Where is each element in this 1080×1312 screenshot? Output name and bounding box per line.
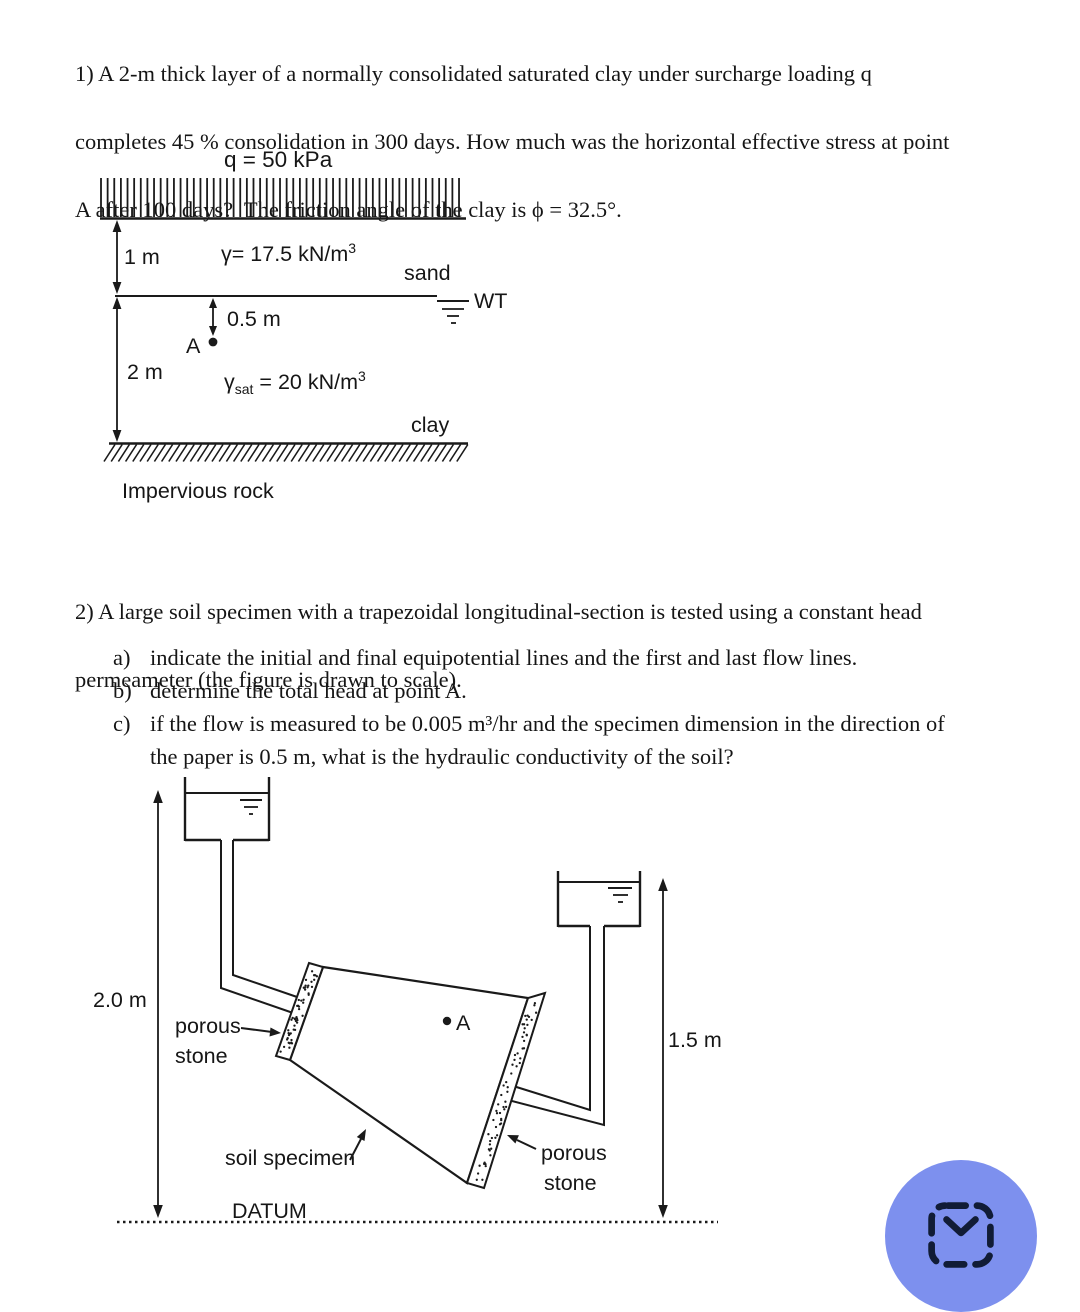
datum-label: DATUM [232,1199,307,1223]
soil-specimen-label: soil specimen [225,1146,355,1170]
dim-1m-label: 1 m [124,245,160,269]
dim-2m-arrow [113,297,122,442]
dim-2m-label: 2 m [127,360,163,384]
right-reservoir [558,871,640,927]
problem1-line1: 1) A 2-m thick layer of a normally conso… [75,58,949,90]
dim-05m-arrow [209,298,217,336]
list-item-b: b)determine the total head at point A. [113,674,945,707]
problem2-subquestions: a)indicate the initial and final equipot… [113,641,945,773]
list-item-c: c)if the flow is measured to be 0.005 m³… [113,707,945,740]
point-a-label: A [456,1011,471,1035]
point-a-dot [443,1017,451,1025]
point-a-dot [209,338,218,347]
figure2-permeameter: 2.0 m 1.5 m [90,770,740,1235]
porous-left-label-line1: porous [175,1014,241,1038]
point-a-label: A [186,334,201,358]
gamma-clay-label: γsat = 20 kN/m3 [224,368,366,397]
porous-right-label-line1: porous [541,1141,607,1165]
dim-left-arrow [153,790,163,1218]
problem2-line1: 2) A large soil specimen with a trapezoi… [75,596,922,628]
dim-05m-label: 0.5 m [227,307,281,331]
dim-right-arrow [658,878,668,1218]
porous-right-label-line2: stone [544,1171,597,1195]
clay-label: clay [411,413,449,437]
capture-region-button[interactable] [885,1160,1037,1312]
list-item-a: a)indicate the initial and final equipot… [113,641,945,674]
dim-1m-arrow [113,220,122,294]
water-level-icon [240,800,262,814]
document-page: { "problem1": { "text_lines": [ "1) A 2-… [0,0,1080,1235]
impervious-rock-label: Impervious rock [122,479,274,503]
wt-label: WT [474,289,507,313]
surcharge-hatching [101,178,459,217]
water-table-icon [437,301,469,323]
sand-label: sand [404,261,451,285]
porous-left-label-line2: stone [175,1044,228,1068]
rock-hatching [104,445,468,462]
list-item-c-cont: the paper is 0.5 m, what is the hydrauli… [113,740,945,773]
gamma-sand-label: γ= 17.5 kN/m3 [221,240,356,266]
dashed-box-chevron-down-icon [928,1202,994,1268]
dim-left-label: 2.0 m [93,988,147,1012]
left-tube-inner [233,840,300,998]
water-level-icon [608,888,632,902]
surcharge-load-label: q = 50 kPa [224,147,333,172]
left-reservoir [185,777,269,841]
dim-right-label: 1.5 m [668,1028,722,1052]
soil-specimen-arrow [350,1129,366,1160]
porous-left-arrow [241,1028,281,1037]
porous-right-arrow [507,1135,536,1149]
figure1-soil-profile: q = 50 kPa 1 m γ= 17.5 kN/m3 sand WT 0.5… [90,138,540,513]
